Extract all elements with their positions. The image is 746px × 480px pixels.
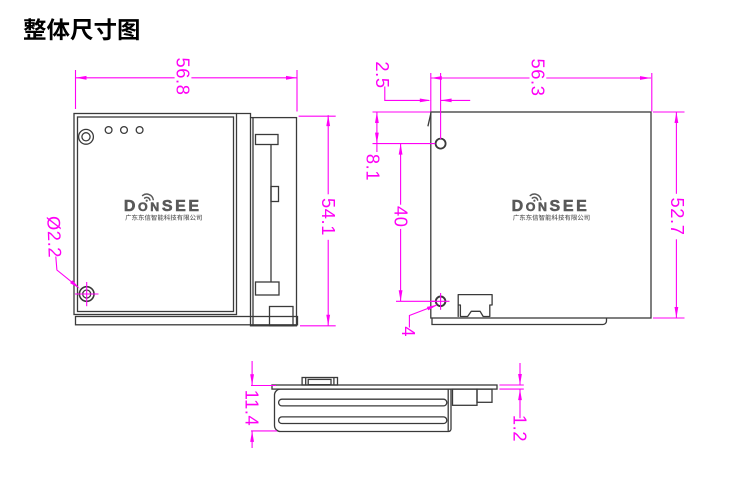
svg-text:8.1: 8.1: [362, 154, 383, 181]
svg-text:1.2: 1.2: [510, 415, 531, 442]
svg-text:56.8: 56.8: [173, 58, 194, 96]
svg-text:11.4: 11.4: [242, 390, 263, 427]
svg-text:Ø2.2: Ø2.2: [43, 216, 65, 259]
svg-text:56.3: 56.3: [527, 59, 548, 97]
svg-text:40: 40: [391, 206, 412, 228]
svg-text:4: 4: [398, 326, 419, 337]
svg-text:2.5: 2.5: [372, 61, 393, 88]
svg-text:54.1: 54.1: [318, 198, 339, 236]
svg-text:52.7: 52.7: [667, 198, 688, 236]
